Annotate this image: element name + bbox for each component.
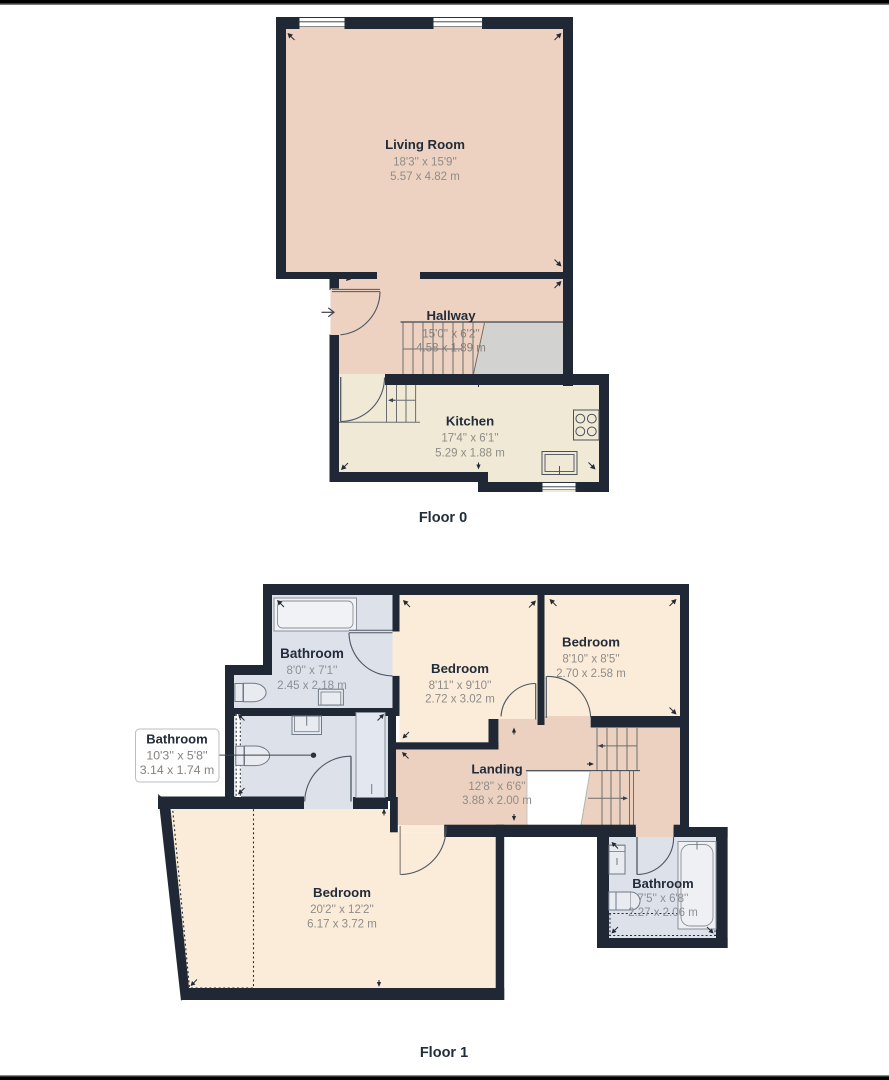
svg-text:Bedroom: Bedroom [313, 885, 371, 900]
svg-text:Floor 0: Floor 0 [419, 510, 467, 526]
svg-text:Living Room: Living Room [385, 137, 465, 152]
svg-text:18'3'' x 15'9'': 18'3'' x 15'9'' [393, 157, 457, 169]
svg-text:8'10'' x 8'5'': 8'10'' x 8'5'' [562, 654, 619, 666]
svg-text:Bathroom: Bathroom [632, 876, 693, 891]
svg-text:Bathroom: Bathroom [146, 732, 207, 747]
svg-text:6.17 x 3.72 m: 6.17 x 3.72 m [307, 919, 377, 931]
svg-text:Hallway: Hallway [426, 308, 476, 323]
svg-text:10'3'' x 5'8'': 10'3'' x 5'8'' [146, 749, 207, 763]
svg-text:15'0'' x 6'2'': 15'0'' x 6'2'' [422, 329, 479, 341]
svg-text:3.14 x 1.74 m: 3.14 x 1.74 m [140, 763, 215, 777]
svg-text:Bathroom: Bathroom [280, 646, 344, 661]
svg-text:Landing: Landing [471, 762, 522, 777]
svg-text:2.45 x 2.18 m: 2.45 x 2.18 m [277, 680, 347, 692]
svg-text:Bedroom: Bedroom [431, 661, 489, 676]
svg-text:2.70 x 2.58 m: 2.70 x 2.58 m [556, 668, 626, 680]
svg-text:Bedroom: Bedroom [562, 635, 620, 650]
svg-text:Floor 1: Floor 1 [420, 1045, 468, 1061]
svg-text:3.88 x 2.00 m: 3.88 x 2.00 m [462, 795, 532, 807]
svg-text:2.27 x 2.06 m: 2.27 x 2.06 m [628, 907, 698, 919]
svg-text:4.58 x 1.89 m: 4.58 x 1.89 m [416, 343, 486, 355]
svg-text:20'2'' x 12'2'': 20'2'' x 12'2'' [310, 904, 374, 916]
svg-text:5.57 x 4.82 m: 5.57 x 4.82 m [390, 171, 460, 183]
svg-text:8'11'' x 9'10'': 8'11'' x 9'10'' [429, 680, 492, 692]
svg-text:Kitchen: Kitchen [446, 414, 494, 429]
svg-text:17'4'' x 6'1'': 17'4'' x 6'1'' [441, 433, 498, 445]
svg-text:7'5'' x 6'8'': 7'5'' x 6'8'' [638, 893, 689, 905]
svg-text:5.29 x 1.88 m: 5.29 x 1.88 m [435, 448, 505, 460]
svg-text:2.72 x 3.02 m: 2.72 x 3.02 m [425, 694, 495, 706]
svg-text:8'0'' x 7'1'': 8'0'' x 7'1'' [287, 665, 338, 677]
svg-text:12'8'' x 6'6'': 12'8'' x 6'6'' [468, 781, 525, 793]
